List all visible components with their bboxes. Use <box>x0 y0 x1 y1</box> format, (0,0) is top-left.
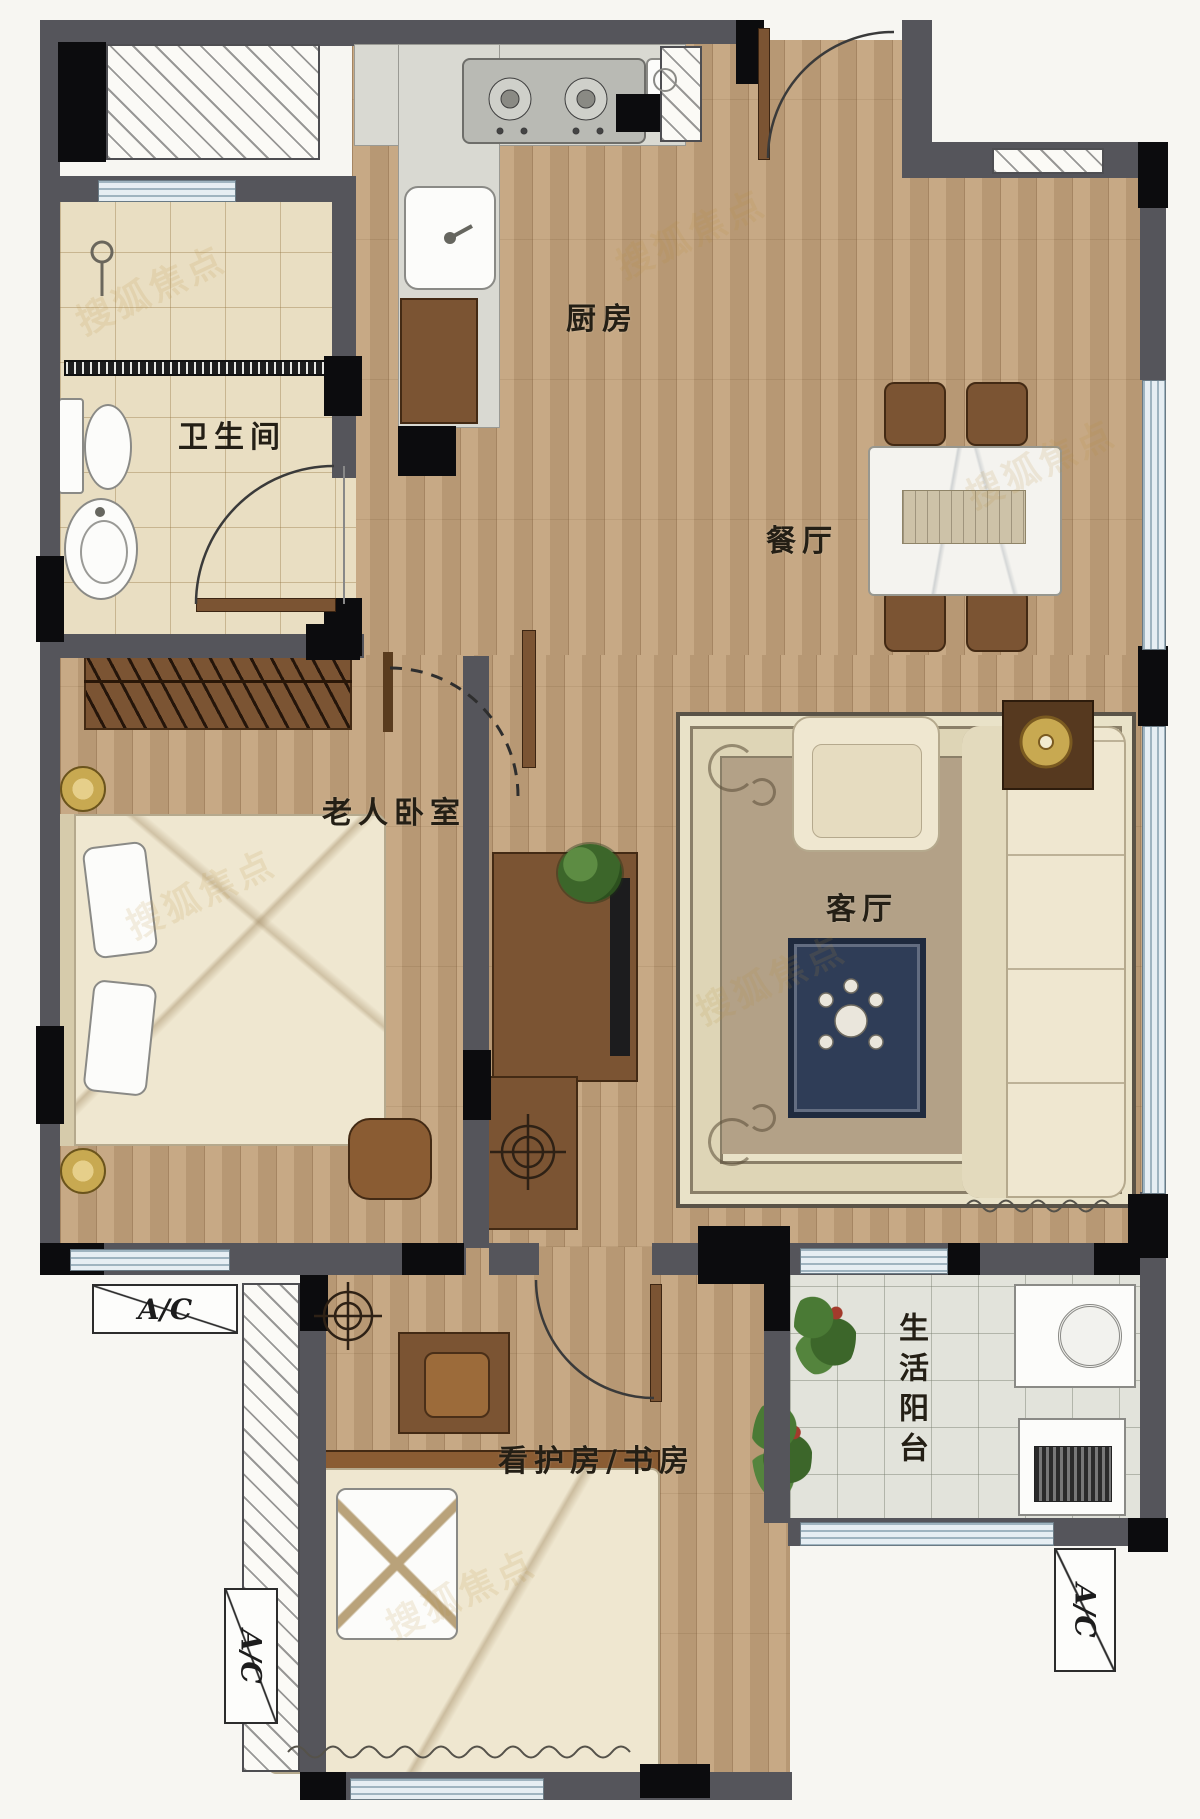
stove-burners <box>489 78 607 134</box>
room-label-elder-bedroom: 老人卧室 <box>322 788 466 832</box>
lamp-crosshair <box>490 1114 566 1190</box>
bathroom-door-arc <box>196 466 334 604</box>
room-label-balcony: 生活阳台 <box>888 1312 932 1472</box>
ac-label: A/C <box>138 1293 192 1326</box>
shower-head <box>92 242 112 262</box>
fabric-squiggle <box>966 1201 1110 1212</box>
bedroom-door-arc-dashed <box>390 668 518 796</box>
room-label-kitchen: 厨房 <box>566 294 638 338</box>
floor-plan: 厨房 餐厅 卫生间 老人卧室 客厅 看护房/书房 生活阳台 A/C A/C A/… <box>0 0 1200 1819</box>
ac-label: A/C <box>235 1629 268 1683</box>
tea-set <box>819 979 883 1049</box>
lamp-crosshair <box>314 1282 382 1350</box>
ac-unit-bottom: A/C <box>224 1588 278 1724</box>
room-label-bathroom: 卫生间 <box>178 412 286 456</box>
fabric-squiggle <box>288 1747 630 1758</box>
ac-label: A/C <box>1069 1583 1102 1637</box>
study-door-arc <box>536 1280 654 1398</box>
room-label-living: 客厅 <box>826 884 898 928</box>
entry-door-arc <box>768 32 894 158</box>
ac-unit-right: A/C <box>1054 1548 1116 1672</box>
room-label-study: 看护房/书房 <box>498 1436 695 1480</box>
room-label-dining: 餐厅 <box>766 516 838 560</box>
ac-unit-left: A/C <box>92 1284 238 1334</box>
